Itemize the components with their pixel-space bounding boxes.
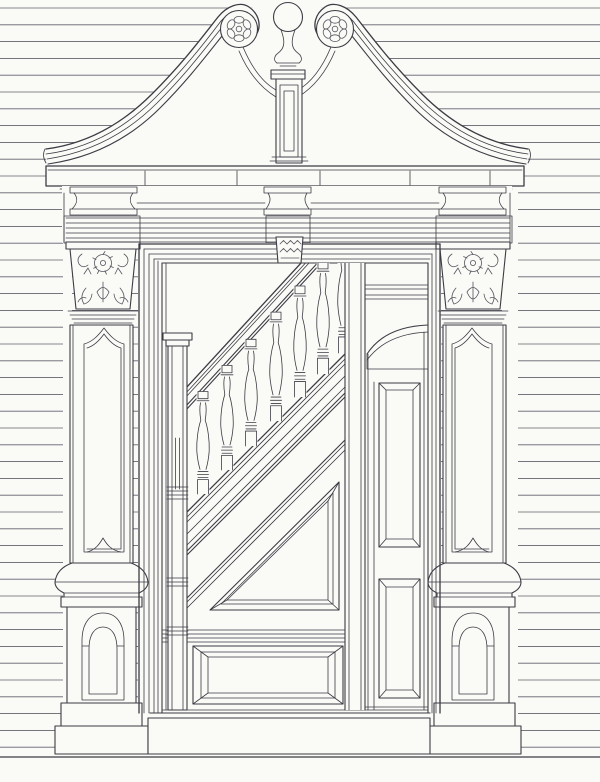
turned-baluster [221,365,234,470]
rosette [221,11,258,48]
plinth-center [148,718,430,754]
turned-baluster [270,312,283,421]
keystone [276,237,303,263]
rosette [317,11,354,48]
cornice-shelf [46,166,524,189]
architectural-drawing-page [0,0,600,782]
doorway-elevation-drawing [0,0,600,782]
finial-ball [274,3,303,32]
turned-baluster [317,261,330,374]
turned-baluster [245,339,258,446]
partition-stile [345,263,365,710]
turned-baluster [294,286,307,397]
turned-baluster [197,392,210,495]
